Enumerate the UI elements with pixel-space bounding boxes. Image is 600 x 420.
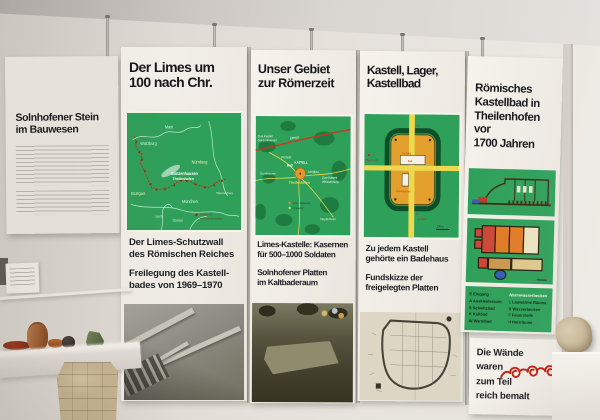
diagram-label: Kornspeicher (396, 189, 411, 193)
map-label: Weissenburg (216, 191, 233, 195)
bath-plan-legend: E Eingang A Auskleideraum S Schwitzbad K… (464, 286, 552, 332)
panel-title: Der Limes um 100 nach Chr. (129, 60, 239, 91)
title-line: zur Römerzeit (258, 77, 349, 91)
stone-masonry (57, 362, 118, 420)
hanging-rod (310, 30, 313, 51)
caption-line: bades von 1969–1970 (129, 280, 242, 292)
map-label: Theilenhofen (173, 177, 194, 181)
caption-line: Zu jedem Kastell (366, 243, 461, 254)
panel-title: Solnhofener Stein im Bauwesen (15, 112, 108, 136)
map-label: Main (165, 124, 173, 129)
kornspeicher-building (402, 174, 409, 186)
bath-cross-section (468, 168, 556, 216)
hanging-rod (401, 35, 404, 52)
legend-item: H Heizräume (508, 319, 548, 327)
legend-text: Römerstr. (292, 206, 304, 210)
road-vertical (408, 114, 415, 237)
exhibit-panel-solnhofener: Solnhofener Stein im Bauwesen (5, 56, 120, 234)
caption: Der Limes-Schutzwall des Römischen Reich… (129, 237, 242, 260)
caption-line: Solnhofener Platten (257, 268, 352, 278)
wall-painting-caption-panel: Die Wände waren zum Teil reich bemalt (468, 338, 562, 416)
caption-block: Der Limes-Schutzwall des Römischen Reich… (129, 237, 242, 299)
map-label: Gunzenhausen (258, 138, 278, 142)
map-label: Stuttgart (131, 191, 146, 196)
hanging-rod (106, 17, 109, 58)
title-line: im Bauwesen (16, 124, 109, 136)
legend-column: E Eingang A Auskleideraum S Schwitzbad K… (468, 291, 508, 327)
diagram-label: Bad (408, 159, 413, 163)
shelf-label-card (5, 262, 39, 293)
scale-label: 100 m (437, 224, 444, 228)
hanging-rod (481, 39, 484, 57)
caption-line: Fundskizze der (365, 272, 460, 283)
map-label: Würzburg (140, 141, 156, 146)
panel-title: Römisches Kastellbad in Theilenhofen vor… (473, 82, 554, 153)
legend-column: Warmwasserbecken L Lauwarme Räume B Wass… (508, 292, 548, 328)
panel-body-text-lines (16, 145, 109, 186)
map-label: Langlau (308, 170, 319, 174)
caption-line: im Kaltbaderaum (257, 278, 352, 288)
diagram-label: Tor (416, 124, 420, 128)
caption-block: Limes-Kastelle: Kasernen für 500–1000 So… (257, 240, 352, 296)
excavation-photo (124, 304, 244, 400)
caption-line: Limes-Kastelle: Kasernen (257, 240, 352, 250)
limes-map: Main Würzburg Nürnberg Gunzenhausen Thei… (125, 111, 243, 232)
map-label: Stopfenheim (320, 217, 336, 221)
diagram-label: Graben (417, 217, 427, 221)
caption-line: reich bemalt (476, 389, 530, 404)
map-label: Theilenhofen (289, 181, 310, 185)
caption-line: Die Wände (477, 346, 531, 361)
panel-title: Kastell, Lager, Kastellbad (367, 64, 458, 91)
map-label: Lech (156, 214, 163, 218)
exhibit-panel-kastell: Kastell, Lager, Kastellbad Wachturm Vorh… (358, 51, 465, 402)
legend-text: Röm. Gebäude (293, 201, 311, 205)
caption-line: gehörte ein Badehaus (366, 253, 461, 264)
title-line: 1700 Jahren (473, 137, 552, 153)
legend-text: Kohortenkastellen (200, 217, 223, 221)
panel-title: Unser Gebiet zur Römerzeit (258, 63, 349, 91)
map-label: Weissenburg (322, 180, 339, 184)
legend-item: W Warmbad (468, 318, 508, 326)
map-label: Nürnberg (192, 160, 208, 165)
pedestal (552, 352, 600, 420)
caption-line: für 500–1000 Soldaten (257, 250, 352, 260)
diagram-label: Vorhalle (402, 151, 411, 155)
caption-line: Der Limes-Schutzwall (129, 237, 242, 249)
caption-line: Freilegung des Kastell- (129, 268, 242, 280)
exhibit-panel-gebiet: Unser Gebiet zur Römerzeit (250, 50, 356, 403)
map-label: BAD (287, 163, 293, 167)
caption-line: des Römischen Reiches (129, 249, 242, 261)
title-line: Unser Gebiet (258, 63, 349, 77)
caption: Limes-Kastelle: Kasernen für 500–1000 So… (257, 240, 352, 260)
gebiet-map: Limes Zum Kastell Gunzenhausen Pfofeld B… (253, 114, 352, 237)
map-label: Donau (173, 219, 183, 223)
diagram-label: Tor (416, 212, 420, 216)
bath-floor-plan (466, 218, 555, 284)
museum-exhibit-wall: Solnhofener Stein im Bauwesen Der Limes … (0, 0, 600, 420)
title-line: Kastellbad (367, 77, 458, 91)
map-label: Pfofeld (281, 155, 291, 159)
title-line: 100 nach Chr. (129, 75, 239, 90)
diagram-label: Wachturm (365, 158, 378, 162)
excavation-photo-dark (252, 303, 353, 402)
clay-pot (27, 322, 48, 351)
label-text-lines (10, 268, 36, 289)
exhibit-panel-kastellbad: Römisches Kastellbad in Theilenhofen vor… (460, 56, 563, 335)
hanging-rod (213, 25, 216, 48)
map-label: KASTELL (295, 160, 308, 164)
map-label: Gunzenhausen (171, 171, 199, 176)
caption: Fundskizze der freigelegten Platten (365, 272, 460, 293)
find-sketch (360, 312, 462, 401)
map-label: Dornhausen (260, 171, 276, 175)
caption-block: Zu jedem Kastell gehörte ein Badehaus Fu… (365, 243, 460, 301)
caption-line: freigelegten Platten (365, 282, 460, 293)
title-line: Der Limes um (129, 60, 239, 75)
caption: Solnhofener Platten im Kaltbaderaum (257, 268, 352, 288)
principia-building (400, 155, 425, 164)
ceiling (0, 0, 600, 50)
panel-body-text-lines (16, 190, 109, 215)
kastell-plan-diagram: Wachturm Vorhalle Bad Tor Tor Kornspeich… (362, 112, 462, 240)
caption: Freilegung des Kastell- bades von 1969–1… (129, 268, 242, 291)
caption: Zu jedem Kastell gehörte ein Badehaus (366, 243, 461, 264)
map-label: München (182, 199, 198, 204)
